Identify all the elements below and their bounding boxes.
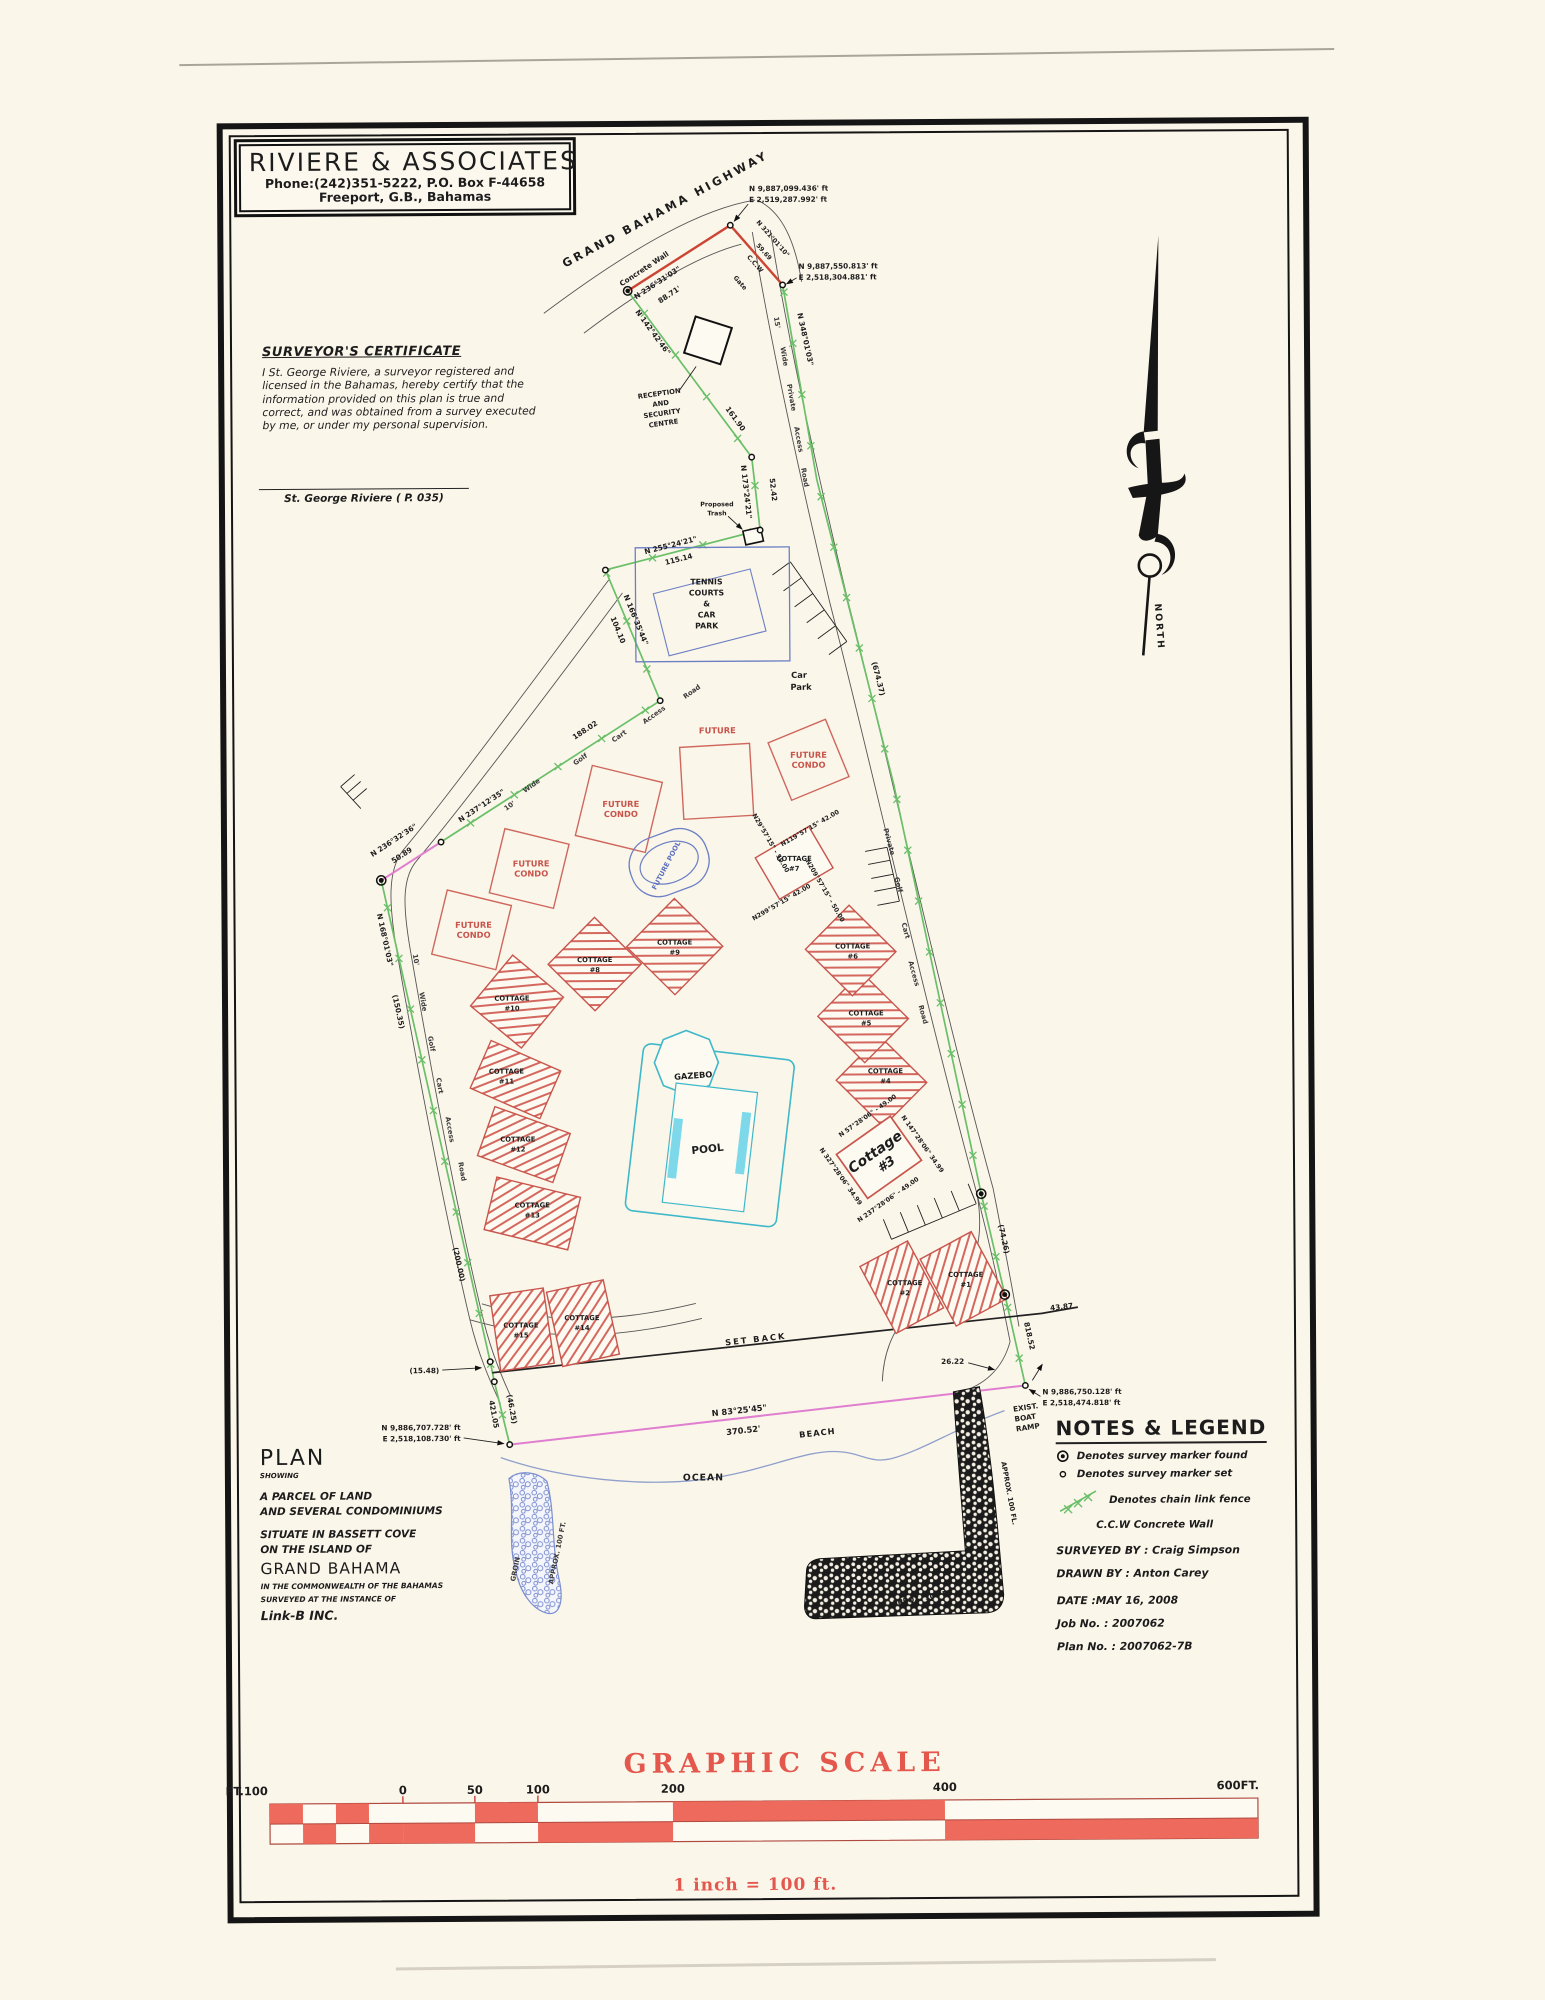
cottage-11 xyxy=(470,1041,560,1119)
scale-tick-label: 600FT. xyxy=(1217,1778,1259,1792)
distance-label: (150.35) xyxy=(390,994,406,1030)
cottage-num: #4 xyxy=(880,1077,891,1085)
scale-tick-label: 200 xyxy=(661,1782,685,1796)
reception-label: RECEPTION xyxy=(637,387,681,401)
cottage-label: COTTAGE xyxy=(657,938,693,946)
cottage-num: #13 xyxy=(525,1211,540,1219)
scale-tick-label: 0 xyxy=(399,1783,407,1797)
north-arrow: NORTH xyxy=(1121,235,1193,657)
coordinate-label: N 9,886,707.728' ft xyxy=(381,1423,461,1432)
scale-tick-label: FT.100 xyxy=(225,1784,267,1798)
gate-label: Gate xyxy=(732,275,748,292)
cottage-label: COTTAGE xyxy=(835,942,871,950)
island-name: GRAND BAHAMA xyxy=(260,1559,510,1579)
road-label: 15' xyxy=(772,316,782,329)
cottage-num: #2 xyxy=(900,1289,911,1297)
cottage-label: COTTAGE xyxy=(564,1314,600,1322)
groin xyxy=(509,1473,561,1614)
cottage-num: #11 xyxy=(499,1078,514,1086)
scale-bar xyxy=(270,1798,1258,1844)
distance-label: 26.22 xyxy=(941,1357,964,1366)
coordinate-label: N 9,887,550.813' ft xyxy=(798,261,878,270)
reception-label: CENTRE xyxy=(648,417,679,429)
showing-word: SHOWING xyxy=(260,1471,510,1481)
coordinate-label: E 2,518,304.881' ft xyxy=(799,272,878,281)
beach-label: BEACH xyxy=(799,1426,836,1440)
survey-plan-drawing: TENNIS COURTS & CAR PARK Car Park RECEPT… xyxy=(0,0,1545,2000)
description-line: SURVEYED AT THE INSTANCE OF xyxy=(261,1594,511,1605)
cottage-label: COTTAGE xyxy=(503,1321,539,1329)
shoreline xyxy=(501,1411,1005,1484)
cottage-num: #12 xyxy=(510,1146,525,1154)
road-label: Golf xyxy=(572,751,590,767)
future-condo-label: FUTURE xyxy=(455,920,492,930)
tennis-label: TENNIS xyxy=(690,577,723,586)
future-condo-label: CONDO xyxy=(457,930,491,940)
future-condo-label: FUTURE xyxy=(790,750,827,760)
cottage-num: #8 xyxy=(590,966,601,974)
tennis-courts: TENNIS COURTS & CAR PARK xyxy=(635,547,790,662)
plan-sheet: RIVIERE & ASSOCIATES Phone:(242)351-5222… xyxy=(0,0,1545,2000)
future-condo-label: FUTURE xyxy=(513,858,550,868)
reception-label: AND xyxy=(652,399,670,409)
car-park-label: Park xyxy=(791,682,813,692)
cottage-label: COTTAGE xyxy=(500,1135,536,1143)
proposed-trash: Proposed Trash xyxy=(700,501,763,545)
bearing-label: N 173°24'21" xyxy=(739,465,754,520)
cottage-num: #10 xyxy=(504,1005,519,1013)
graphic-scale-title: GRAPHIC SCALE xyxy=(623,1747,945,1780)
distance-label: (46.25) xyxy=(505,1394,519,1425)
scale-tick-label: 50 xyxy=(467,1783,483,1797)
distance-label: (15.48) xyxy=(409,1366,439,1375)
coordinate-label: N 9,886,750.128' ft xyxy=(1042,1387,1122,1396)
cottage-label: COTTAGE xyxy=(577,956,613,964)
future-condo-label: CONDO xyxy=(514,868,548,878)
future-condo-label: CONDO xyxy=(604,809,638,819)
surveyed-by: SURVEYED BY : Craig Simpson xyxy=(1056,1543,1296,1557)
cottage-label: COTTAGE xyxy=(494,994,530,1002)
description-line: SITUATE IN BASSETT COVE xyxy=(260,1528,510,1542)
plan-number: Plan No. : 2007062-7B xyxy=(1057,1639,1297,1653)
ocean-label: OCEAN xyxy=(683,1472,724,1483)
description-line: ON THE ISLAND OF xyxy=(260,1543,510,1557)
pool-complex: GAZEBO POOL xyxy=(624,1030,797,1229)
distance-label: 52.42 xyxy=(768,478,779,502)
road-label: Road xyxy=(799,467,810,488)
road-label: 10' xyxy=(411,953,421,966)
scanned-survey-plan: RIVIERE & ASSOCIATES Phone:(242)351-5222… xyxy=(0,0,1545,2000)
scale-tick-label: 400 xyxy=(933,1780,957,1794)
distance-label: 818.52 xyxy=(1022,1321,1037,1350)
scale-equivalence: 1 inch = 100 ft. xyxy=(673,1875,837,1896)
road-label: Road xyxy=(456,1161,467,1182)
cottage-label: COTTAGE xyxy=(948,1271,984,1279)
legend-heading: NOTES & LEGEND xyxy=(1056,1415,1267,1444)
cottage-label: COTTAGE xyxy=(868,1067,904,1075)
notes-and-legend: NOTES & LEGEND Denotes survey marker fou… xyxy=(1056,1415,1297,1653)
chain-link-fence-icon xyxy=(1056,1485,1102,1515)
bearing-label: N 348°01'03" xyxy=(795,312,815,367)
graphic-scale: GRAPHIC SCALE FT.100 0 50 100 200 400 60… xyxy=(225,1745,1259,1898)
job-number: Job No. : 2007062 xyxy=(1057,1616,1297,1630)
tennis-label: & xyxy=(703,599,710,608)
road-label: Access xyxy=(641,704,667,726)
description-line: AND SEVERAL CONDOMINIUMS xyxy=(260,1505,510,1519)
legend-item-label: Denotes chain link fence xyxy=(1109,1494,1251,1506)
tennis-label: COURTS xyxy=(689,588,725,597)
road-label: Golf xyxy=(892,876,904,894)
cottage-label: COTTAGE xyxy=(515,1201,551,1209)
road-label: Access xyxy=(443,1116,456,1143)
cottage-label: COTTAGE xyxy=(489,1068,525,1076)
tennis-label: CAR xyxy=(698,610,716,619)
scale-tick-label: 100 xyxy=(526,1782,550,1796)
bearing-label: N 142°42'46" xyxy=(633,308,672,357)
coordinate-label: E 2,518,474.818' ft xyxy=(1042,1398,1121,1407)
future-condo-label: FUTURE xyxy=(699,725,736,735)
plan-description: PLAN SHOWING A PARCEL OF LAND AND SEVERA… xyxy=(260,1445,511,1624)
distance-label: 161.90 xyxy=(723,405,747,433)
cottage-num: #1 xyxy=(961,1281,972,1289)
cottage-num: #6 xyxy=(847,952,858,960)
north-label: NORTH xyxy=(1152,603,1167,650)
distance-label: 421.05 xyxy=(487,1400,501,1429)
cottage-num: #9 xyxy=(669,949,680,957)
trash-label: Trash xyxy=(707,510,726,517)
road-label: Road xyxy=(917,1004,930,1025)
plan-word: PLAN xyxy=(260,1445,510,1472)
ccw-label: C.C.W xyxy=(745,254,764,274)
cottages: COTTAGE #8 COTTAGE #9 COTTAGE #10 COTTAG… xyxy=(469,806,1008,1371)
future-condo-label: CONDO xyxy=(792,760,826,770)
survey-date: DATE :MAY 16, 2008 xyxy=(1057,1593,1297,1607)
car-park-label: Car xyxy=(791,670,808,680)
coordinate-label: N 9,887,099.436' ft xyxy=(749,184,829,193)
boat-ramp-label: EXIST. BOAT RAMP xyxy=(1012,1401,1041,1433)
road-label: Private xyxy=(881,827,896,856)
distance-label: 43.87 xyxy=(1050,1301,1074,1312)
bearing-label: N 237°12'35" xyxy=(456,787,506,824)
legend-item-label: Denotes survey marker set xyxy=(1077,1468,1232,1480)
cottage-label: COTTAGE xyxy=(887,1279,923,1287)
future-condo-label: FUTURE xyxy=(602,799,639,809)
boat-ramp-jetty xyxy=(803,1387,1004,1619)
distance-label: 88.71' xyxy=(656,284,682,305)
description-line: IN THE COMMONWEALTH OF THE BAHAMAS xyxy=(261,1581,511,1592)
road-label: Wide xyxy=(417,992,428,1013)
legend-item-label: C.C.W Concrete Wall xyxy=(1096,1519,1213,1531)
cottage-num: #7 xyxy=(789,865,800,873)
tennis-label: PARK xyxy=(695,621,719,630)
cottage-label: COTTAGE xyxy=(848,1009,884,1017)
cottage-num: #5 xyxy=(861,1019,872,1027)
distance-label: (674.37) xyxy=(870,661,887,697)
coordinate-label: E 2,519,287.992' ft xyxy=(749,195,828,204)
distance-label: (74.26) xyxy=(996,1224,1011,1255)
legend-item-label: Denotes survey marker found xyxy=(1077,1450,1248,1462)
description-line: A PARCEL OF LAND xyxy=(260,1490,510,1504)
distance-label: 188.02 xyxy=(571,719,599,742)
cottage-num: #14 xyxy=(574,1324,589,1332)
road-label: Access xyxy=(792,426,805,453)
road-label: Private xyxy=(785,383,798,412)
jetty-length-label: APPROX. 100 FL. xyxy=(999,1461,1018,1526)
cottage-14 xyxy=(547,1280,620,1367)
survey-marker-found-icon xyxy=(1056,1449,1070,1463)
distance-label: 370.52' xyxy=(726,1423,761,1437)
drawn-by: DRAWN BY : Anton Carey xyxy=(1056,1566,1296,1580)
coordinate-label: E 2,518,108.730' ft xyxy=(383,1434,462,1443)
road-label: Access xyxy=(906,960,921,987)
road-label: Wide xyxy=(778,346,789,367)
cottage-num: #15 xyxy=(513,1331,528,1339)
road-label: Cart xyxy=(900,922,912,940)
road-label: Road xyxy=(682,683,703,701)
client-name: Link-B INC. xyxy=(261,1607,511,1624)
survey-marker-set-icon xyxy=(1056,1468,1070,1480)
trash-label: Proposed xyxy=(700,501,733,508)
road-label: Golf xyxy=(426,1035,437,1053)
future-pool: FUTURE POOL xyxy=(621,820,717,904)
